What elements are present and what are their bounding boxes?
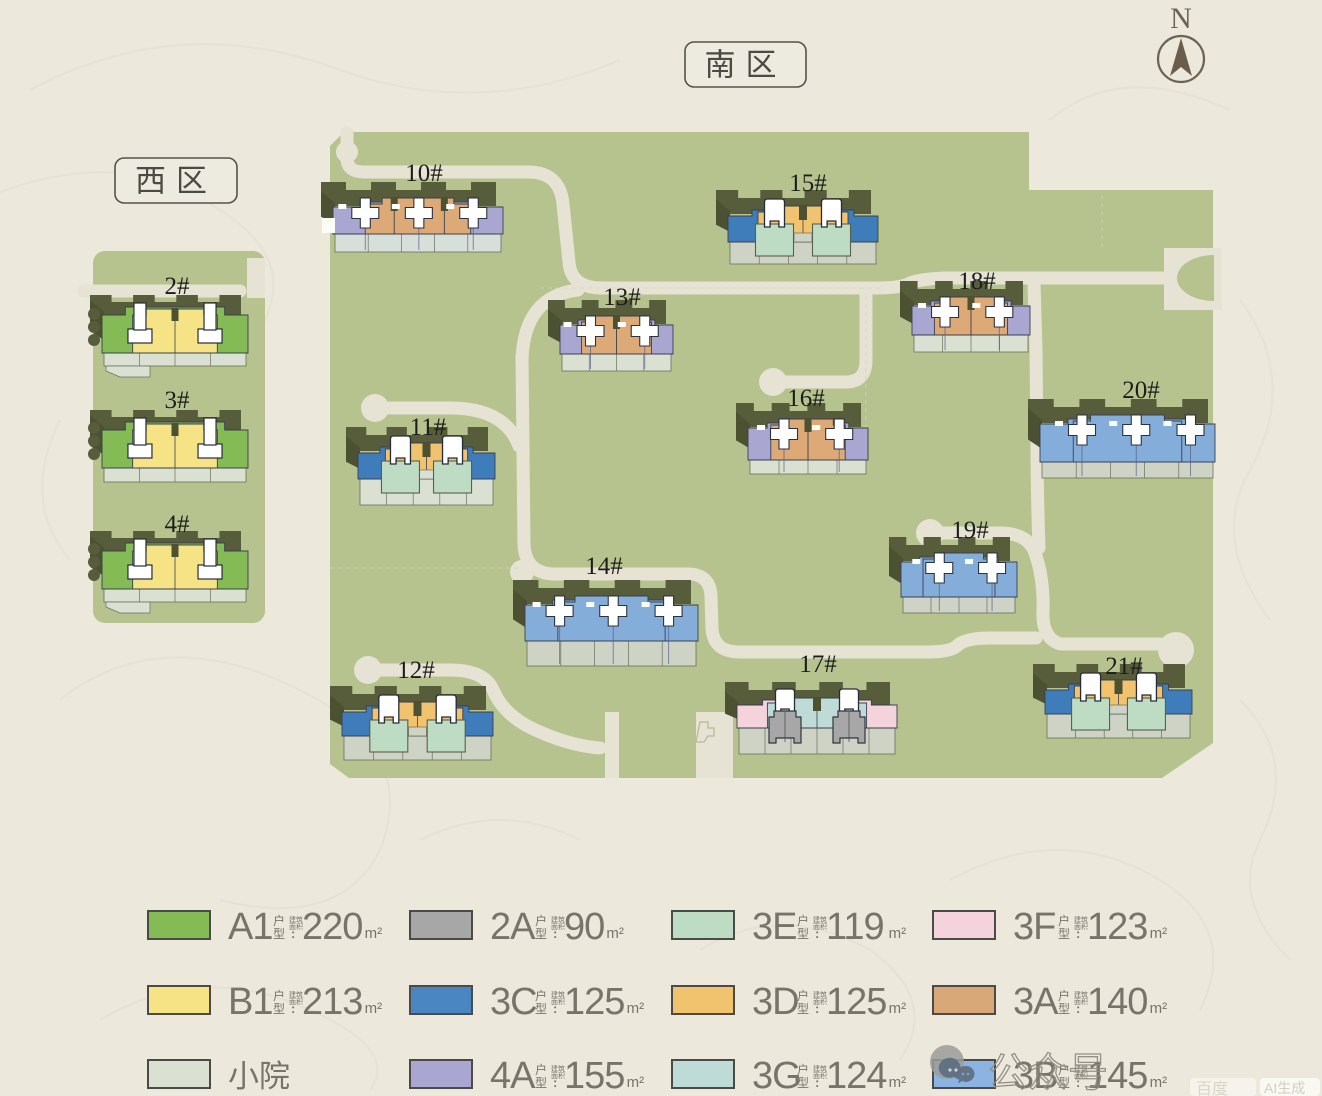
svg-text:户: 户 — [797, 913, 809, 928]
svg-text:m²: m² — [1150, 925, 1168, 942]
svg-text:2#: 2# — [165, 273, 191, 300]
svg-text:220: 220 — [302, 906, 362, 948]
svg-text:4#: 4# — [165, 511, 191, 538]
svg-text:户: 户 — [797, 988, 809, 1003]
svg-text:建筑: 建筑 — [1074, 915, 1088, 924]
svg-text:型: 型 — [797, 1076, 809, 1090]
svg-text::: : — [1076, 926, 1080, 941]
svg-text:m²: m² — [365, 1000, 383, 1017]
svg-text:19#: 19# — [951, 517, 989, 544]
svg-text:建筑: 建筑 — [289, 915, 303, 924]
svg-text:3A: 3A — [1013, 981, 1059, 1023]
svg-text:建筑: 建筑 — [813, 990, 827, 999]
svg-text:3C: 3C — [490, 981, 537, 1023]
svg-text:西区: 西区 — [135, 164, 217, 199]
svg-text:m²: m² — [627, 1074, 645, 1091]
svg-text:建筑: 建筑 — [813, 915, 827, 924]
svg-text::: : — [553, 926, 557, 941]
svg-text:型: 型 — [797, 927, 809, 941]
svg-text:140: 140 — [1087, 981, 1147, 1023]
svg-text:型: 型 — [797, 1002, 809, 1016]
svg-text::: : — [553, 1001, 557, 1016]
svg-text:型: 型 — [535, 1002, 547, 1016]
svg-text:21#: 21# — [1105, 653, 1143, 680]
svg-text:3F: 3F — [1013, 906, 1055, 948]
svg-text:户: 户 — [1058, 988, 1070, 1003]
svg-text:公众号: 公众号 — [988, 1051, 1108, 1095]
svg-text:户: 户 — [535, 913, 547, 928]
svg-text:90: 90 — [564, 906, 604, 948]
svg-text:A1: A1 — [228, 906, 272, 948]
svg-text:建筑: 建筑 — [551, 915, 565, 924]
svg-text:14#: 14# — [585, 553, 623, 580]
svg-text::: : — [815, 926, 819, 941]
svg-text:17#: 17# — [799, 651, 837, 678]
svg-text:户: 户 — [797, 1062, 809, 1077]
svg-text:18#: 18# — [958, 268, 996, 295]
svg-text:m²: m² — [1150, 1074, 1168, 1091]
svg-text::: : — [291, 926, 295, 941]
svg-text:户: 户 — [535, 1062, 547, 1077]
svg-text:百度: 百度 — [1196, 1080, 1228, 1096]
svg-text:建筑: 建筑 — [813, 1064, 827, 1073]
svg-text:m²: m² — [889, 1000, 907, 1017]
svg-text:户: 户 — [535, 988, 547, 1003]
svg-text:型: 型 — [273, 1002, 285, 1016]
svg-text:户: 户 — [273, 988, 285, 1003]
svg-text::: : — [815, 1075, 819, 1090]
svg-text::: : — [291, 1001, 295, 1016]
svg-text:型: 型 — [273, 927, 285, 941]
svg-text:125: 125 — [564, 981, 624, 1023]
svg-text:型: 型 — [535, 1076, 547, 1090]
svg-text:m²: m² — [365, 925, 383, 942]
svg-text:小院: 小院 — [228, 1059, 290, 1094]
svg-text:3G: 3G — [752, 1055, 801, 1096]
svg-text:m²: m² — [889, 925, 907, 942]
svg-text:建筑: 建筑 — [551, 990, 565, 999]
svg-text:户: 户 — [273, 913, 285, 928]
svg-text:13#: 13# — [603, 284, 641, 311]
svg-text:155: 155 — [564, 1055, 624, 1096]
svg-text:户: 户 — [1058, 913, 1070, 928]
svg-text:m²: m² — [627, 1000, 645, 1017]
svg-text:213: 213 — [302, 981, 362, 1023]
svg-text:3D: 3D — [752, 981, 799, 1023]
svg-text::: : — [1076, 1001, 1080, 1016]
svg-text:16#: 16# — [787, 385, 825, 412]
svg-text:119: 119 — [826, 906, 884, 948]
svg-text:建筑: 建筑 — [551, 1064, 565, 1073]
svg-text:AI生成: AI生成 — [1264, 1080, 1305, 1096]
svg-text:m²: m² — [1150, 1000, 1168, 1017]
svg-text:4A: 4A — [490, 1055, 536, 1096]
svg-text:123: 123 — [1087, 906, 1147, 948]
svg-text:10#: 10# — [405, 160, 443, 187]
svg-text:11#: 11# — [410, 414, 447, 441]
svg-text:15#: 15# — [789, 170, 827, 197]
svg-text::: : — [815, 1001, 819, 1016]
svg-text:型: 型 — [1058, 1002, 1070, 1016]
svg-text:B1: B1 — [228, 981, 272, 1023]
svg-text:3#: 3# — [165, 387, 191, 414]
svg-text:建筑: 建筑 — [289, 990, 303, 999]
svg-text:20#: 20# — [1122, 377, 1160, 404]
svg-text:m²: m² — [606, 925, 624, 942]
svg-text:3E: 3E — [752, 906, 796, 948]
svg-text:2A: 2A — [490, 906, 536, 948]
svg-text::: : — [553, 1075, 557, 1090]
svg-text:建筑: 建筑 — [1074, 990, 1088, 999]
svg-text:125: 125 — [826, 981, 886, 1023]
svg-text:型: 型 — [1058, 927, 1070, 941]
svg-text:南区: 南区 — [705, 48, 787, 83]
svg-text:12#: 12# — [397, 657, 435, 684]
svg-text:型: 型 — [535, 927, 547, 941]
svg-text:124: 124 — [826, 1055, 887, 1096]
svg-text:N: N — [1170, 2, 1192, 35]
svg-text:m²: m² — [889, 1074, 907, 1091]
